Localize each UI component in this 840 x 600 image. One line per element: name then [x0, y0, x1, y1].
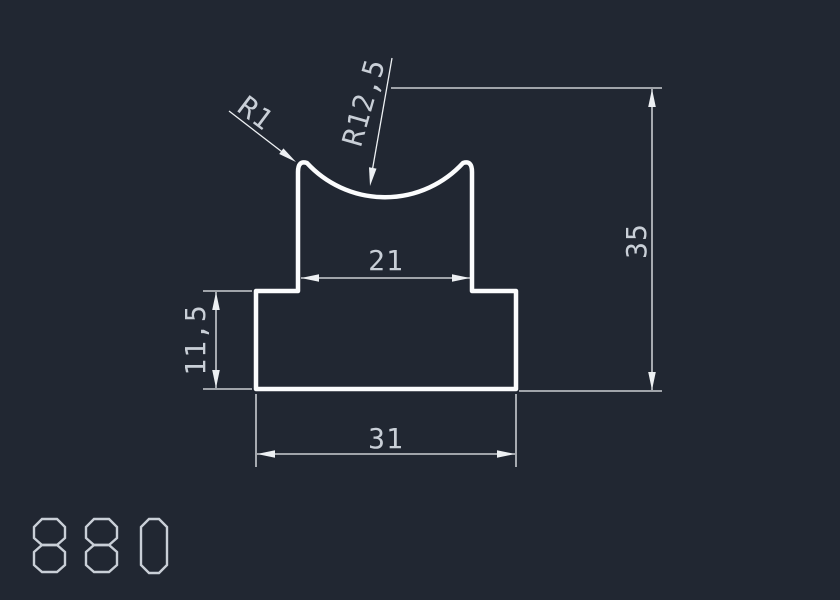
dim-total-height: 35	[391, 88, 662, 391]
leader-corner-radius: R1	[229, 89, 296, 162]
arrowhead-left-icon	[301, 274, 319, 282]
part-number	[34, 519, 167, 573]
part-number-digit-8	[34, 519, 65, 545]
arrowhead-right-icon	[452, 274, 470, 282]
arrowhead-icon	[369, 167, 377, 186]
arrowhead-up-icon	[212, 292, 220, 310]
corner-radius-label: R1	[232, 89, 280, 137]
leader-groove-radius: R12,5	[336, 55, 392, 186]
arrowhead-left-icon	[257, 450, 275, 458]
part-number-digit-8	[34, 545, 65, 572]
dim-base-height: 11,5	[179, 291, 252, 389]
part-number-digit-8	[86, 519, 117, 545]
arrowhead-down-icon	[648, 372, 656, 390]
dim-neck-width-label: 21	[368, 244, 404, 277]
arrowhead-right-icon	[497, 450, 515, 458]
part-number-digit-0	[141, 519, 167, 573]
dim-base-height-label: 11,5	[179, 304, 212, 375]
drawing-svg: 21 31 11,5 35	[0, 0, 840, 600]
dim-neck-width: 21	[301, 244, 470, 282]
dim-base-width-label: 31	[368, 422, 404, 455]
dim-base-width: 31	[256, 394, 516, 467]
dim-total-height-label: 35	[620, 223, 653, 259]
arrowhead-icon	[279, 148, 296, 162]
arrowhead-down-icon	[212, 370, 220, 388]
part-number-digit-8	[86, 545, 117, 572]
arrowhead-up-icon	[648, 89, 656, 107]
drawing-canvas[interactable]: 21 31 11,5 35	[0, 0, 840, 600]
